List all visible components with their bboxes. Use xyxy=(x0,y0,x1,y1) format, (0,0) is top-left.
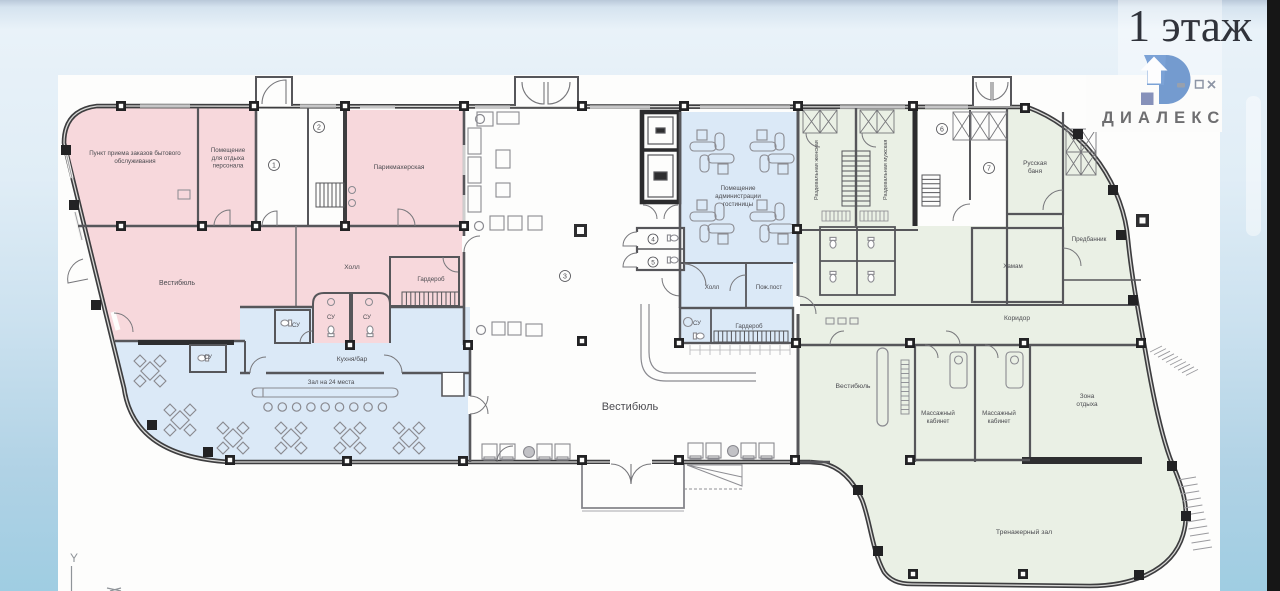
svg-text:Гардероб: Гардероб xyxy=(735,323,763,330)
svg-text:Кухня/бар: Кухня/бар xyxy=(337,355,368,363)
svg-text:Парикмахерская: Парикмахерская xyxy=(374,164,425,171)
svg-text:Пож.пост: Пож.пост xyxy=(756,284,783,291)
svg-text:Коридор: Коридор xyxy=(1004,315,1030,322)
svg-text:Гардероб: Гардероб xyxy=(417,276,445,283)
svg-text:1: 1 xyxy=(272,163,276,170)
svg-text:Зал на 24 места: Зал на 24 места xyxy=(308,379,355,386)
svg-text:СУ: СУ xyxy=(327,315,335,321)
svg-text:Холл: Холл xyxy=(705,284,720,291)
svg-text:СУ: СУ xyxy=(693,321,701,327)
svg-text:СУ: СУ xyxy=(292,323,300,329)
svg-text:Хамам: Хамам xyxy=(1003,263,1023,270)
svg-text:Помещениедля отдыхаперсонала: Помещениедля отдыхаперсонала xyxy=(211,147,246,170)
svg-text:ДИАЛЕКС: ДИАЛЕКС xyxy=(1102,109,1225,127)
svg-text:5: 5 xyxy=(651,260,655,267)
svg-text:1 этаж: 1 этаж xyxy=(1128,1,1253,51)
svg-text:7: 7 xyxy=(987,166,991,173)
svg-text:СУ: СУ xyxy=(204,355,212,361)
svg-text:Раздевальная женская: Раздевальная женская xyxy=(814,140,820,200)
svg-text:Вестибюль: Вестибюль xyxy=(159,279,195,287)
svg-text:Холл: Холл xyxy=(344,264,360,271)
svg-text:Раздевальная мужская: Раздевальная мужская xyxy=(883,140,889,200)
svg-text:Вестибюль: Вестибюль xyxy=(836,382,871,390)
svg-text:2: 2 xyxy=(317,125,321,132)
svg-text:Тренажерный зал: Тренажерный зал xyxy=(996,528,1052,536)
svg-text:Вестибюль: Вестибюль xyxy=(602,401,659,413)
svg-text:Предбанник: Предбанник xyxy=(1072,236,1107,243)
svg-text:4: 4 xyxy=(651,237,655,244)
svg-text:6: 6 xyxy=(940,127,944,134)
svg-text:СУ: СУ xyxy=(363,315,371,321)
svg-text:3: 3 xyxy=(563,274,567,281)
svg-text:Y: Y xyxy=(70,551,78,565)
